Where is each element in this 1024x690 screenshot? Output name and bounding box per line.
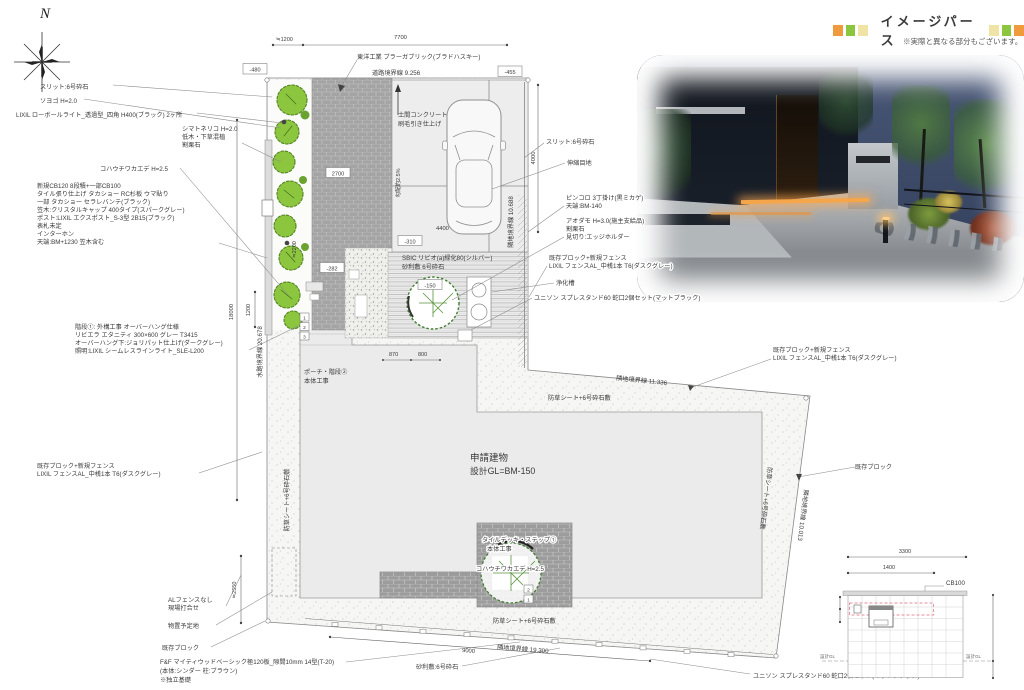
label-ff-fence: F&F マイティウッドベーシック極120板_隙間10mm 14型(T-20) (160, 658, 334, 666)
legend-square (1014, 25, 1024, 36)
svg-text:砂利敷 6号砕石: 砂利敷 6号砕石 (402, 263, 444, 271)
label-brick: 東洋工業 ブラーガブリック(ブラドハスキー) (357, 53, 480, 61)
svg-text:2: 2 (527, 588, 530, 594)
svg-text:タイル張り仕上げ タカショー RC杉板 ウマ貼り: タイル張り仕上げ タカショー RC杉板 ウマ貼り (37, 190, 169, 198)
svg-text:天端:BM+1230 笠木含む: 天端:BM+1230 笠木含む (37, 238, 104, 246)
svg-text:割栗石: 割栗石 (182, 141, 201, 149)
svg-text:表札未定: 表札未定 (37, 222, 62, 230)
label-soyogo: ソヨゴ H=2.0 (40, 97, 78, 105)
render-gate-slit (856, 156, 891, 162)
gravel-band (345, 248, 388, 338)
svg-text:LIXIL フェンスAL_中桟1本 T6(ダスクグレー): LIXIL フェンスAL_中桟1本 T6(ダスクグレー) (37, 470, 161, 478)
label-sbic: SBIC リビオ(a)緑化80(シルバー) (402, 254, 492, 262)
label-stairs1: 階段①: 外構工事 オーバーハング仕様 (75, 323, 180, 331)
dim-m310: -310 (404, 240, 415, 246)
svg-text:設計GL=BM-150: 設計GL=BM-150 (470, 465, 535, 476)
label-wall-spec: 新規CB120 8段積+一部CB100 (37, 182, 121, 190)
label-al-fence: ALフェンスなし (168, 597, 213, 604)
dim-m282: -282 (326, 267, 337, 273)
svg-text:現場打合せ: 現場打合せ (168, 604, 199, 612)
svg-text:インターホン: インターホン (37, 230, 74, 238)
render-door (776, 95, 818, 201)
dim-800: 800 (418, 352, 427, 358)
compass: N (14, 6, 70, 92)
render-bollard (883, 218, 888, 243)
compass-north-label: N (39, 6, 51, 22)
dim-18000: 18000 (229, 304, 235, 320)
label-lowpole: LIXIL ローボールライト_透過型_四角 H400(ブラック) 2ヶ所 (16, 111, 182, 119)
svg-text:本体工事: 本体工事 (487, 545, 512, 553)
legend-square (989, 25, 999, 36)
svg-text:LIXIL フェンスAL_中桟1本 T6(ダスクグレー): LIXIL フェンスAL_中桟1本 T6(ダスクグレー) (773, 354, 897, 362)
label-deck-maple: コハウチワカエデ H=2.5 (476, 565, 544, 573)
septic-tank (467, 277, 491, 327)
svg-text:照明:LIXIL シームレスラインライト_SLE-L200: 照明:LIXIL シームレスラインライト_SLE-L200 (75, 348, 204, 355)
label-adj-b: 隣地境界線 19.300 (497, 643, 550, 655)
dim-2200: ≒2200 (292, 241, 298, 258)
tile-deck-step (380, 572, 477, 598)
detail-gl-left: 設計GL (820, 653, 836, 660)
dim-4000: 4000 (531, 152, 537, 165)
label-shed: 物置予定地 (168, 622, 199, 630)
label-weed-sheet-tr: 防草シート+6号砕石敷 (548, 394, 611, 402)
label-deck: タイルデッキ・ステップ① (482, 536, 556, 544)
label-weed-sheet-b: 防草シート+6号砕石敷 (493, 617, 556, 625)
dim-1200: ≒1200 (276, 37, 293, 43)
svg-text:刷毛引き仕上げ: 刷毛引き仕上げ (398, 120, 442, 128)
post-box (262, 200, 273, 216)
label-existing-block-right: 既存ブロック (855, 463, 892, 471)
legend-square (833, 25, 843, 36)
dim-m455: -455 (504, 70, 515, 76)
detail-dim-top: 3300 (899, 549, 911, 555)
label-weed-sheet-left: 防草シート+6号砕石敷 (283, 469, 291, 532)
stepping-stone (355, 295, 367, 317)
label-kohauchiwa: コハウチワカエデ H=2.5 (100, 165, 168, 173)
label-existing-block-left: 既存ブロック (162, 644, 199, 652)
dim-4400: 4400 (436, 226, 449, 232)
dim-m480: -480 (249, 68, 260, 74)
dim-1200b: 1200 (246, 304, 252, 316)
interphone (306, 282, 323, 291)
svg-text:オーバーハング下:ジョリパット仕上げ(ダークグレー): オーバーハング下:ジョリパット仕上げ(ダークグレー) (75, 339, 223, 347)
label-gravel: 砂利敷:6号砕石 (416, 663, 458, 671)
slope-label: 勾配約2.5% (394, 168, 402, 197)
render-step-glow2 (711, 212, 812, 215)
lowpole-light (282, 120, 287, 125)
svg-text:1: 1 (527, 598, 530, 604)
svg-text:本体工事: 本体工事 (304, 377, 329, 385)
detail-gl-right: 設計GL (966, 653, 982, 660)
svg-text:一部 タカショー セラレバンテ(ブラック): 一部 タカショー セラレバンテ(ブラック) (37, 198, 150, 206)
svg-text:ポスト:LIXIL エクスポスト_S-3型 2B15(ブラッ: ポスト:LIXIL エクスポスト_S-3型 2B15(ブラック) (37, 214, 174, 222)
legend-square (846, 25, 856, 36)
label-shima: シマトネリコ H=2.0 (182, 126, 238, 133)
label-fence-left: 既存ブロック+新規フェンス (37, 462, 115, 470)
car (443, 100, 506, 234)
dim-m150: -150 (424, 284, 435, 290)
detail-postbox (869, 606, 893, 627)
legend-square (1002, 25, 1012, 36)
dim-9000: 9000 (462, 648, 475, 655)
dim-2700: 2700 (332, 172, 344, 178)
svg-text:3: 3 (303, 335, 306, 341)
lowpole-light (285, 241, 290, 246)
perspective-note: ※実際と異なる部分もございます。 (903, 36, 1022, 47)
label-concrete: 土間コンクリート (398, 111, 448, 119)
svg-text:1: 1 (303, 316, 306, 322)
stepping-stone (349, 270, 359, 279)
detail-cb100-label: CB100 (946, 580, 965, 587)
label-building: 申請建物 (470, 452, 509, 464)
render-tree-mid (819, 65, 873, 139)
water-stand (458, 330, 472, 341)
label-slit-left: スリット:6号砕石 (40, 83, 88, 91)
label-road-boundary: 道路境界線 9.256 (372, 69, 421, 77)
svg-text:※独立基礎: ※独立基礎 (160, 676, 191, 684)
dim-7700: 7700 (394, 35, 407, 41)
perspective-render (637, 55, 1024, 302)
render-tree-left (637, 109, 691, 208)
svg-text:笠木:クリスタルキャップ 400タイプ(スパークグレー): 笠木:クリスタルキャップ 400タイプ(スパークグレー) (37, 206, 185, 214)
dim-870: 870 (389, 352, 398, 358)
label-adj-r: 隣地境界線 10.688 (507, 196, 515, 248)
svg-text:2: 2 (303, 325, 306, 331)
front-wall (265, 140, 272, 335)
legend-square (858, 25, 868, 36)
detail-dim-mid: 1400 (883, 565, 895, 571)
label-water-boundary: 水路境界線 20.678 (256, 326, 264, 378)
detail-elevation: 3300 1400 CB100 設計GL 設計GL (820, 549, 994, 679)
label-adj-br: 隣地境界線 10.013 (796, 489, 810, 542)
render-tile-strip (637, 214, 730, 225)
label-porch: ポーチ・階段② (304, 368, 347, 376)
render-tree-right2 (954, 99, 1020, 198)
svg-text:リビエラ エタニティ 300×600 グレー T3415: リビエラ エタニティ 300×600 グレー T3415 (75, 331, 198, 339)
svg-text:(本体:シンダー 柱:ブラウン): (本体:シンダー 柱:ブラウン) (160, 667, 237, 675)
svg-text:低木・下草混植: 低木・下草混植 (182, 133, 225, 141)
dim-2550: ≒2550 (232, 582, 238, 599)
label-fence-right2: 既存ブロック+新規フェンス (773, 346, 851, 354)
